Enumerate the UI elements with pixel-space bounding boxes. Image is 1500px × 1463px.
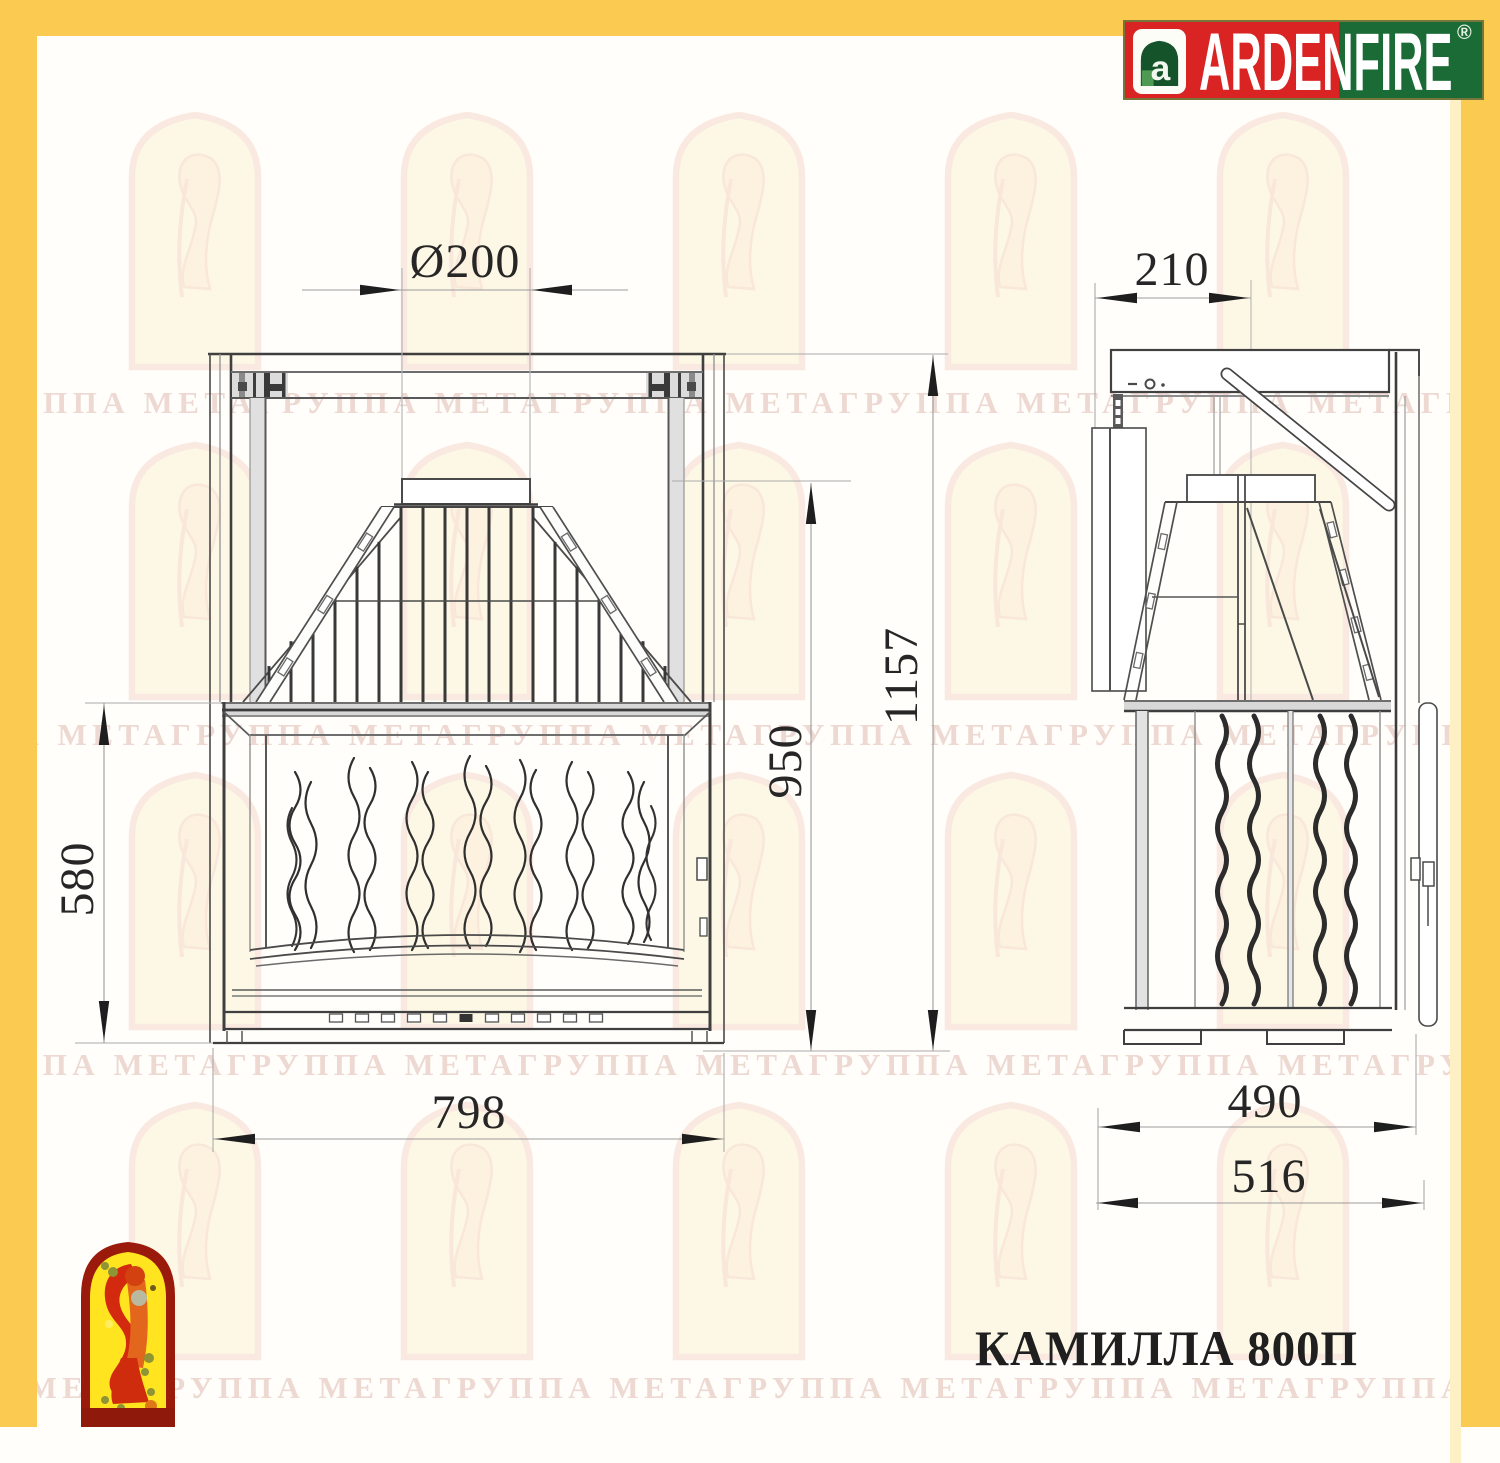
svg-text:798: 798 xyxy=(432,1086,507,1139)
svg-text:580: 580 xyxy=(51,842,104,917)
svg-text:210: 210 xyxy=(1135,243,1210,296)
svg-text:516: 516 xyxy=(1232,1150,1307,1203)
svg-text:490: 490 xyxy=(1228,1075,1303,1128)
svg-text:Ø200: Ø200 xyxy=(410,235,521,288)
svg-text:950: 950 xyxy=(759,724,812,799)
svg-text:1157: 1157 xyxy=(875,627,928,725)
svg-text:a: a xyxy=(1151,49,1171,88)
